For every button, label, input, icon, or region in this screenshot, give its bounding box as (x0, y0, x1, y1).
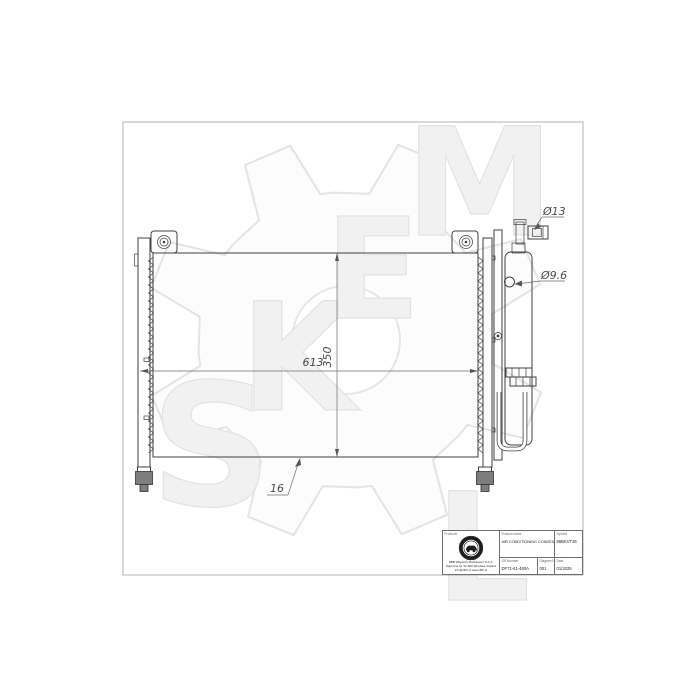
symbol-value: 86BKVT36 (555, 539, 582, 544)
producer-address-line: info@dbb.pl www.dbb.pl (443, 569, 499, 573)
watermark-letter: M (405, 97, 554, 271)
oe-number-value: DF71-61-480A (500, 566, 537, 571)
drawing-sheet: S K E M L (0, 0, 700, 700)
date-label: Date (555, 558, 582, 563)
dimension-height-label: 350 (321, 347, 334, 368)
dimension-depth-label: 16 (270, 482, 284, 495)
left-side-plate (138, 238, 150, 467)
title-block-diagram-cell: Diagram No. 001 (537, 557, 554, 574)
bracket-hole (163, 241, 166, 244)
left-plate-tab (135, 254, 139, 266)
title-block-product-cell: Product name AIR CONDITIONING CONDENSER (499, 531, 554, 557)
dimension-d13-label: Ø13 (542, 205, 566, 218)
dimension-d96-label: Ø9.6 (540, 269, 567, 282)
title-block-oe-cell: OE Number DF71-61-480A (499, 557, 537, 574)
title-block-producer-cell: Producer DBB Wojciech Mackiewicz S.K.A. … (443, 531, 499, 574)
diagram-no-value: 001 (538, 566, 554, 571)
product-name-value: AIR CONDITIONING CONDENSER (500, 539, 554, 544)
producer-stamp-icon (458, 535, 484, 561)
title-block-date-cell: Date 01/2025 (554, 557, 582, 574)
left-plate-stub (144, 358, 149, 362)
oe-number-label: OE Number (500, 558, 537, 563)
date-value: 01/2025 (555, 566, 582, 571)
technical-drawing: S K E M L (0, 0, 700, 700)
bracket-hole (465, 241, 468, 244)
product-name-label: Product name (500, 531, 554, 536)
title-block-symbol-cell: Symbol 86BKVT36 (554, 531, 582, 557)
symbol-label: Symbol (555, 531, 582, 536)
left-plate-stub (144, 416, 149, 420)
diagram-no-label: Diagram No. (538, 558, 554, 563)
title-block: Producer DBB Wojciech Mackiewicz S.K.A. … (442, 530, 583, 575)
bracket-bolt-center (497, 335, 500, 338)
producer-logo (458, 535, 484, 561)
producer-address: DBB Wojciech Mackiewicz S.K.A. Paprotna … (443, 561, 499, 573)
